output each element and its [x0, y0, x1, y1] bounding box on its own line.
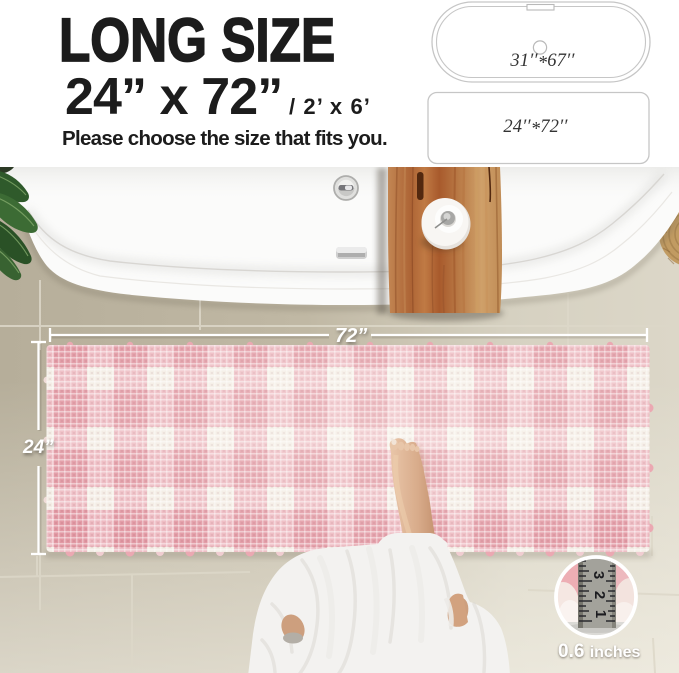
svg-text:1: 1 [592, 610, 609, 618]
svg-text:3: 3 [590, 571, 607, 579]
svg-text:2: 2 [591, 591, 608, 599]
